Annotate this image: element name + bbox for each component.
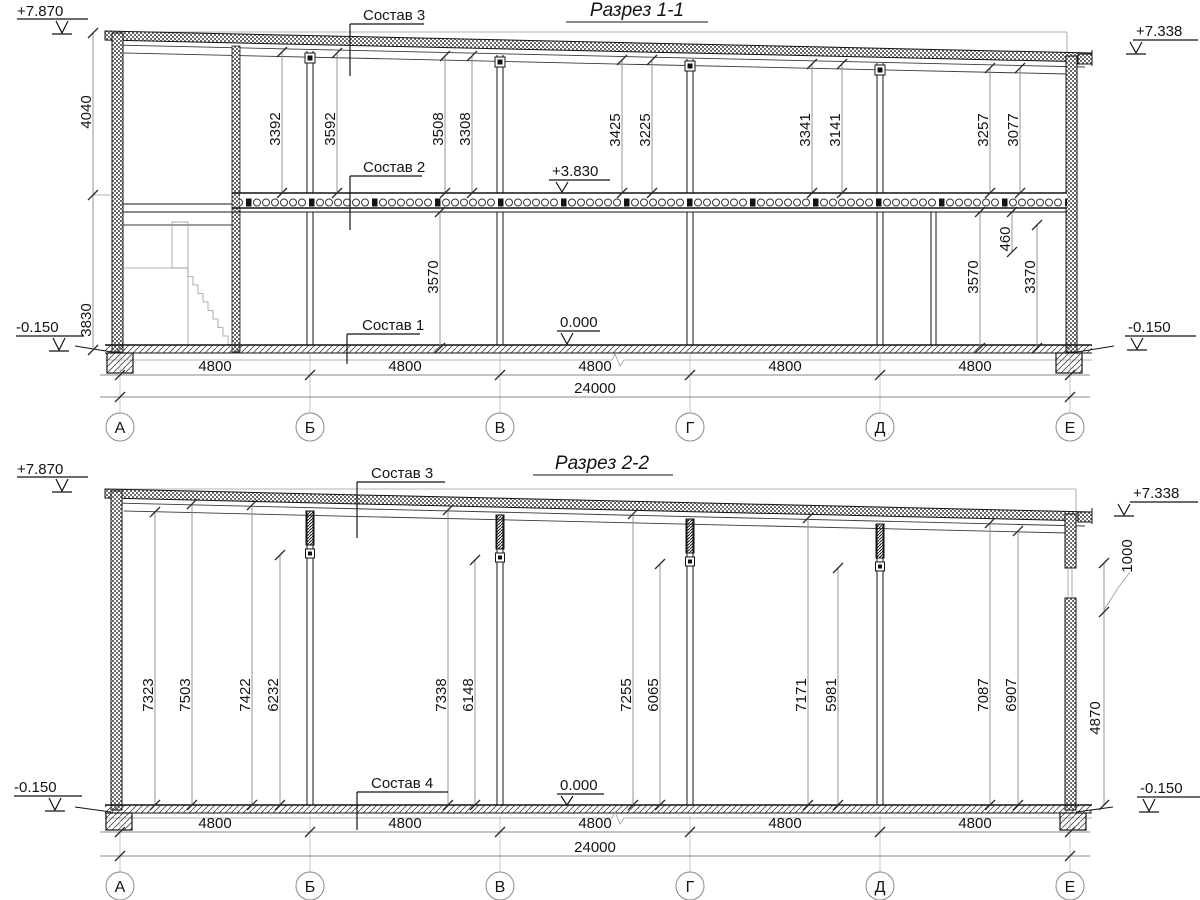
elev-zero: 0.000	[560, 314, 598, 331]
ground-height-dims: 3570 460 3570 3370	[425, 207, 1042, 353]
axis-a: А	[115, 420, 126, 437]
axis-bubbles: А Б В Г Д Е	[106, 413, 1084, 441]
total-dim: 24000	[574, 839, 616, 856]
wall-left	[111, 491, 122, 810]
dim-h0: 7323	[140, 678, 157, 711]
sostav1-label: Состав 1	[362, 317, 424, 334]
dim-3830: 3830	[78, 303, 95, 336]
dim-g3: 3370	[1022, 260, 1039, 293]
dim-h4: 7338	[433, 678, 450, 711]
bottom-dimensions: 4800 4800 4800 4800 4800 24000	[100, 354, 1090, 413]
axis-bubbles: А Б В Г Д Е	[106, 872, 1084, 900]
column-head-d	[876, 524, 884, 558]
window-opening	[1065, 568, 1076, 598]
dim-h5: 3225	[637, 113, 654, 146]
dim-h1: 3592	[322, 112, 339, 145]
sostav-callouts: Состав 3 Состав 2 Состав 1	[347, 7, 425, 364]
dim-window: 1000	[1119, 539, 1136, 572]
dim-g0: 3570	[425, 260, 442, 293]
dim-h9: 5981	[823, 678, 840, 711]
axis-v: В	[495, 879, 506, 896]
dim-h4: 3425	[607, 113, 624, 146]
axis-a: А	[115, 879, 126, 896]
bay-dim-0: 4800	[198, 815, 231, 832]
right-dims: 1000 4870	[1087, 539, 1136, 810]
bay-dim-1: 4800	[388, 815, 421, 832]
bay-dim-2: 4800	[578, 358, 611, 375]
dim-h0: 3392	[267, 112, 284, 145]
bay-dim-0: 4800	[198, 358, 231, 375]
axis-b: Б	[305, 420, 316, 437]
stair-wall	[232, 46, 240, 352]
dim-g2: 3570	[965, 260, 982, 293]
section-2-2: Разрез 2-2	[14, 453, 1200, 900]
bay-dim-3: 4800	[768, 358, 801, 375]
axis-g: Г	[686, 879, 695, 896]
sostav-callouts: Состав 3 Состав 4	[357, 465, 448, 830]
roof-edge-cap	[1078, 512, 1092, 522]
axis-g: Г	[686, 420, 695, 437]
bay-dim-2: 4800	[578, 815, 611, 832]
elev-top-left: +7.870	[17, 461, 63, 478]
section2-title: Разрез 2-2	[555, 453, 650, 474]
dim-h10: 7087	[975, 678, 992, 711]
elev-zero: 0.000	[560, 777, 598, 794]
dim-h1: 7503	[177, 678, 194, 711]
staircase	[123, 222, 233, 345]
axis-b: Б	[305, 879, 316, 896]
bay-dim-1: 4800	[388, 358, 421, 375]
axis-v: В	[495, 420, 506, 437]
dim-right: 4870	[1087, 701, 1104, 734]
bay-dim-4: 4800	[958, 358, 991, 375]
column-head-g	[686, 519, 694, 553]
dim-h6: 7255	[618, 678, 635, 711]
foundation-left	[106, 813, 132, 830]
total-dim: 24000	[574, 380, 616, 397]
dim-h7: 6065	[645, 678, 662, 711]
dim-h7: 3141	[827, 113, 844, 146]
elev-floor: +3.830	[552, 163, 598, 180]
hollow-core-slab	[240, 193, 1067, 208]
drawing-sheet: Разрез 1-1	[0, 0, 1200, 900]
partition-wall	[931, 212, 936, 345]
roof-slab	[105, 31, 1092, 62]
axis-d: Д	[875, 420, 886, 437]
column-head-b	[306, 511, 314, 545]
sostav4-label: Состав 4	[371, 775, 433, 792]
dim-g1: 460	[997, 226, 1014, 251]
axis-d: Д	[875, 879, 886, 896]
axis-e: Е	[1065, 879, 1076, 896]
foundation-right	[1056, 353, 1082, 373]
elev-bottom-left: -0.150	[14, 779, 57, 796]
wall-right-lower	[1065, 598, 1076, 810]
roof-slab	[105, 489, 1092, 521]
section-1-1: Разрез 1-1	[16, 0, 1198, 441]
dim-h3: 3308	[457, 112, 474, 145]
floor-slab	[105, 805, 1092, 813]
dim-4040: 4040	[78, 95, 95, 128]
wall-right-upper	[1065, 514, 1076, 568]
foundation-right	[1060, 813, 1086, 830]
elev-bottom-left: -0.150	[16, 319, 59, 336]
dim-h2: 3508	[430, 112, 447, 145]
sostav3-label: Состав 3	[371, 465, 433, 482]
ground-slab	[105, 345, 1092, 353]
bay-dim-4: 4800	[958, 815, 991, 832]
elev-bottom-right: -0.150	[1140, 780, 1183, 797]
wall-right	[1066, 56, 1077, 352]
dim-h3: 6232	[265, 678, 282, 711]
elev-bottom-right: -0.150	[1128, 319, 1171, 336]
dim-h8: 7171	[793, 678, 810, 711]
height-dims: 7323 7503 7422 6232 7338 6148 7255 6065 …	[140, 499, 1023, 810]
elev-top-left: +7.870	[17, 3, 63, 20]
left-dimension: 4040 3830	[78, 28, 112, 355]
bottom-dimensions: 4800 4800 4800 4800 4800 24000	[100, 815, 1090, 872]
sostav2-label: Состав 2	[363, 159, 425, 176]
dim-h6: 3341	[797, 113, 814, 146]
dim-h9: 3077	[1005, 113, 1022, 146]
dim-h11: 6907	[1003, 678, 1020, 711]
axis-e: Е	[1065, 420, 1076, 437]
bay-dim-3: 4800	[768, 815, 801, 832]
dim-h8: 3257	[975, 113, 992, 146]
section1-title: Разрез 1-1	[590, 0, 684, 21]
elev-top-right: +7.338	[1133, 485, 1179, 502]
roof-edge-cap	[1078, 54, 1092, 64]
column-head-v	[496, 515, 504, 549]
blueprint-canvas: Разрез 1-1	[0, 0, 1200, 900]
dim-h2: 7422	[237, 678, 254, 711]
dim-h5: 6148	[460, 678, 477, 711]
wall-left	[112, 33, 123, 352]
column-joint-details	[306, 549, 885, 571]
elev-top-right: +7.338	[1136, 23, 1182, 40]
sostav3-label: Состав 3	[363, 7, 425, 24]
columns	[306, 511, 885, 805]
